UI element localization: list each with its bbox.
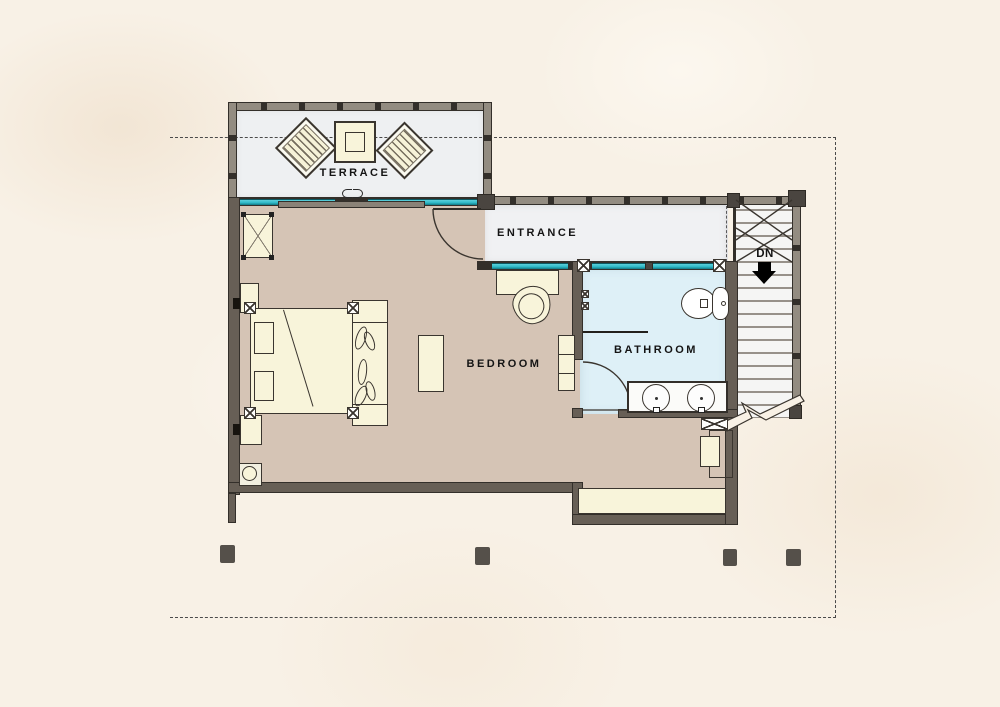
bed-post bbox=[347, 407, 359, 419]
double-bed-icon bbox=[250, 308, 354, 414]
wall-post bbox=[577, 259, 590, 272]
stair-direction-label: DN bbox=[756, 248, 774, 260]
bathroom-label: BATHROOM bbox=[614, 344, 698, 356]
duct-shaft bbox=[701, 418, 728, 430]
chair-leg bbox=[269, 212, 274, 217]
bed-post bbox=[244, 407, 256, 419]
shelf-divider bbox=[559, 354, 574, 355]
down-arrow bbox=[752, 271, 776, 284]
pillow-icon bbox=[254, 322, 274, 354]
pillow-icon bbox=[254, 371, 274, 401]
break-line-icon bbox=[722, 395, 804, 431]
door-swing-icon bbox=[433, 209, 483, 259]
nightstand-icon bbox=[353, 322, 387, 323]
blanket-fold-line bbox=[283, 310, 313, 407]
shower-valve-icon bbox=[581, 302, 589, 310]
toilet-tank bbox=[712, 287, 729, 320]
bed-post bbox=[347, 302, 359, 314]
wardrobe-drawer bbox=[700, 436, 720, 467]
wall-post bbox=[713, 259, 726, 272]
floor-plan: TERRACE ENTRANCE BEDROOM BATHROOM DN bbox=[0, 0, 1000, 707]
ottoman-icon bbox=[418, 335, 444, 392]
faucet-icon bbox=[698, 407, 705, 413]
chair-leg bbox=[241, 212, 246, 217]
window-seat-icon bbox=[578, 488, 726, 514]
faucet-icon bbox=[653, 407, 660, 413]
bed-post bbox=[244, 302, 256, 314]
shelf-divider bbox=[559, 373, 574, 374]
chair-leg bbox=[269, 255, 274, 260]
terrace-label: TERRACE bbox=[320, 167, 391, 179]
shower-partition bbox=[583, 331, 648, 333]
toilet-tank-cap bbox=[721, 301, 726, 306]
stool-seat bbox=[242, 466, 257, 481]
door-swing-icon bbox=[583, 362, 631, 410]
shelf-icon bbox=[558, 335, 575, 391]
stool-icon bbox=[239, 463, 262, 486]
bedroom-label: BEDROOM bbox=[467, 358, 542, 370]
toilet-flush bbox=[700, 299, 708, 308]
toilet-icon bbox=[681, 288, 716, 319]
door-handle-icon bbox=[342, 189, 352, 198]
chair-leg bbox=[241, 255, 246, 260]
door-handle-icon bbox=[353, 189, 363, 198]
sliding-door-icon bbox=[278, 201, 425, 208]
pillow-icon bbox=[362, 330, 378, 352]
entrance-label: ENTRANCE bbox=[497, 227, 578, 239]
cabinet-icon bbox=[240, 415, 262, 445]
linework-overlay bbox=[0, 0, 1000, 707]
pillow-icon bbox=[364, 380, 378, 402]
armchair-icon bbox=[243, 214, 273, 258]
coffee-table-inner bbox=[345, 132, 365, 152]
shower-valve-icon bbox=[581, 290, 589, 298]
desk-chair-back bbox=[515, 290, 548, 323]
